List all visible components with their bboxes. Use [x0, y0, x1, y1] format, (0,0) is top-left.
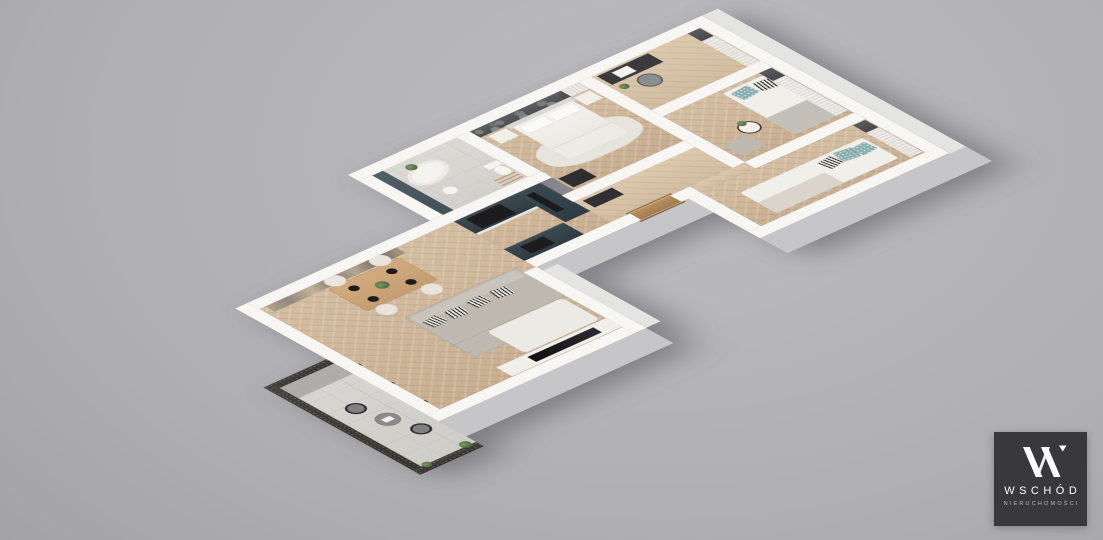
logo-subtitle: NIERUCHOMOŚCI: [1001, 501, 1079, 507]
floorplan-3d: [86, 2, 1083, 488]
scene-background: WSCHÓD NIERUCHOMOŚCI: [0, 0, 1103, 540]
logo-title: WSCHÓD: [1000, 485, 1082, 497]
brand-logo: WSCHÓD NIERUCHOMOŚCI: [994, 432, 1087, 526]
logo-w-monogram-icon: [1014, 442, 1068, 482]
